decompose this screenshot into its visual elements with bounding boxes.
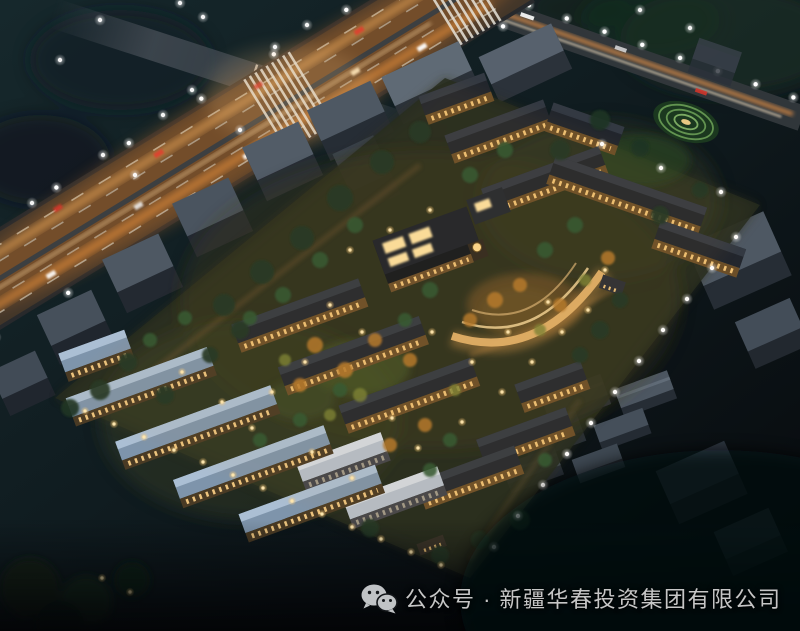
wechat-icon [360, 583, 398, 614]
caption-text: 公众号 · 新疆华春投资集团有限公司 [405, 582, 782, 614]
caption-bar: 公众号 · 新疆华春投资集团有限公司 [360, 582, 782, 614]
aerial-night-rendering: 公众号 · 新疆华春投资集团有限公司 [0, 0, 800, 631]
rendering-scene [0, 0, 800, 631]
